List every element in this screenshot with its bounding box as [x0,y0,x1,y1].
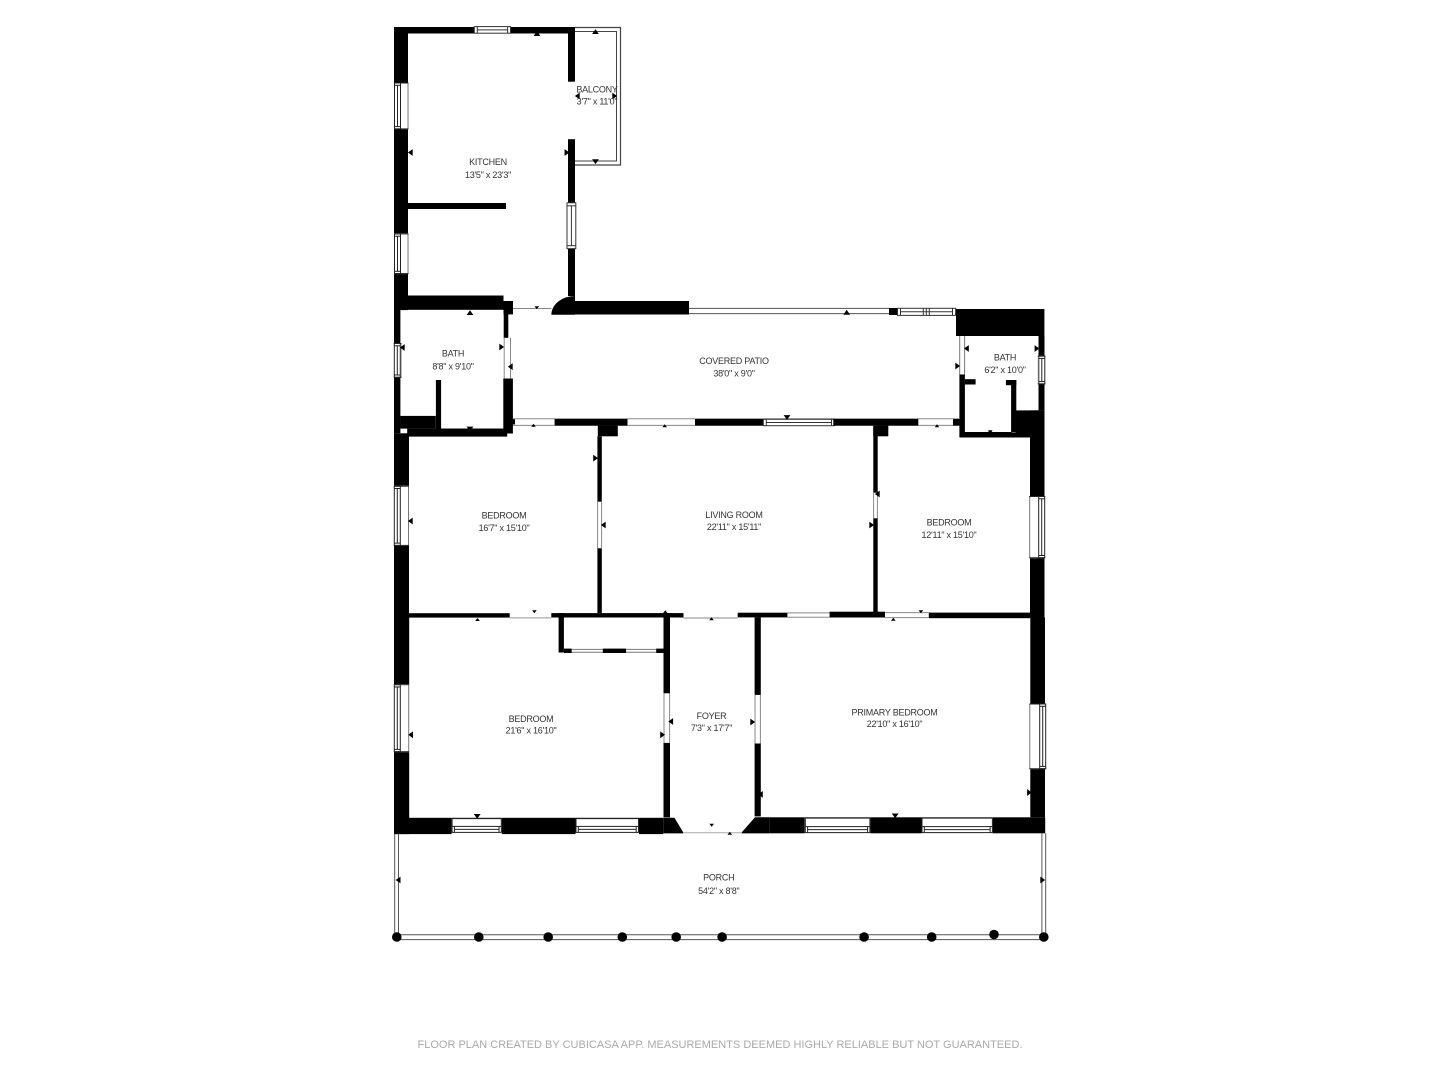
svg-text:8'8" x 9'10": 8'8" x 9'10" [432,362,473,372]
svg-text:FLOOR PLAN CREATED BY CUBICASA: FLOOR PLAN CREATED BY CUBICASA APP. MEAS… [418,1039,1023,1051]
svg-text:12'11" x 15'10": 12'11" x 15'10" [922,530,977,540]
svg-text:BEDROOM: BEDROOM [509,714,554,724]
svg-text:16'7" x 15'10": 16'7" x 15'10" [479,523,530,533]
svg-text:BATH: BATH [442,349,464,359]
svg-text:6'2" x 10'0": 6'2" x 10'0" [984,365,1025,375]
svg-text:KITCHEN: KITCHEN [469,157,507,167]
svg-text:PORCH: PORCH [703,873,734,883]
svg-text:21'6" x 16'10": 21'6" x 16'10" [506,726,557,736]
svg-text:38'0" x 9'0": 38'0" x 9'0" [713,369,754,379]
svg-text:PRIMARY BEDROOM: PRIMARY BEDROOM [852,708,938,718]
svg-text:COVERED PATIO: COVERED PATIO [699,356,769,366]
svg-text:FOYER: FOYER [697,711,728,721]
svg-text:BEDROOM: BEDROOM [482,511,527,521]
svg-text:54'2" x 8'8": 54'2" x 8'8" [698,886,739,896]
svg-text:13'5" x 23'3": 13'5" x 23'3" [465,170,511,180]
svg-text:7'3" x 17'7": 7'3" x 17'7" [691,723,732,733]
svg-text:22'11" x 15'11": 22'11" x 15'11" [707,522,761,532]
svg-text:3'7" x 11'0": 3'7" x 11'0" [577,97,618,107]
svg-text:BATH: BATH [994,353,1016,363]
svg-text:22'10" x 16'10": 22'10" x 16'10" [867,719,923,729]
svg-text:BALCONY: BALCONY [576,85,618,95]
svg-text:BEDROOM: BEDROOM [927,518,972,528]
svg-text:LIVING ROOM: LIVING ROOM [705,510,762,520]
